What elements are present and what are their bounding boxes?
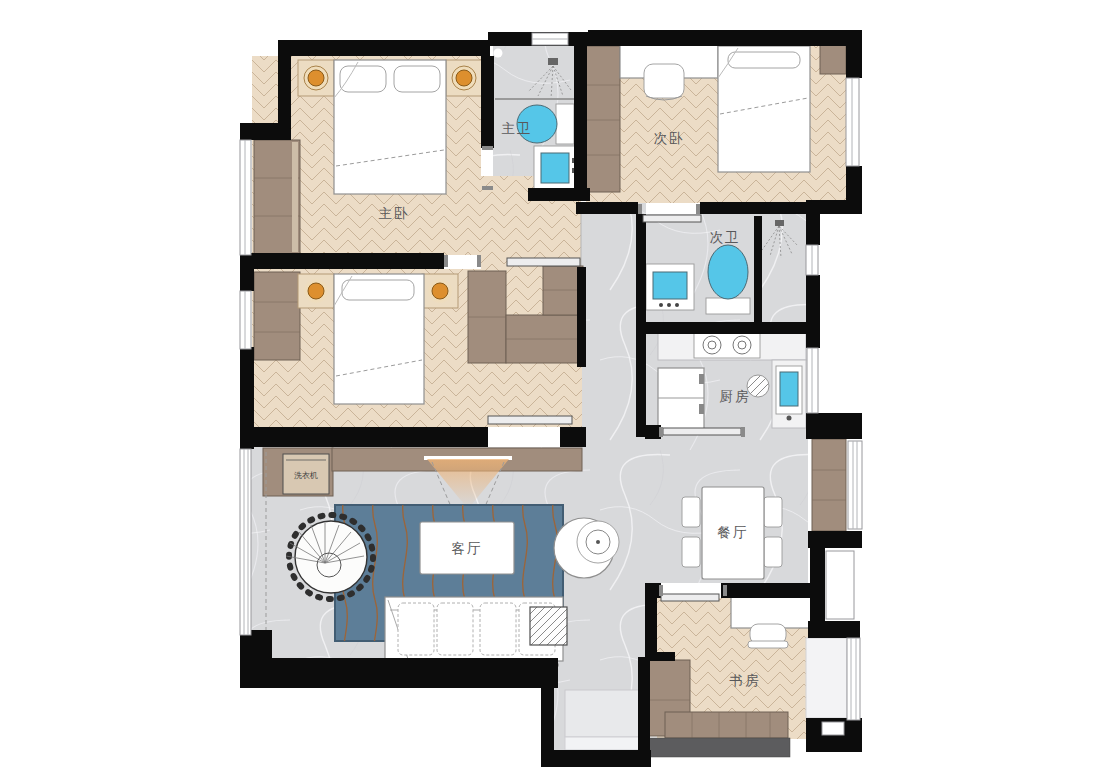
window (240, 449, 251, 635)
bed (334, 274, 424, 404)
second-bedroom-label: 次卧 (654, 131, 685, 146)
entry-threshold (565, 737, 643, 750)
bookshelf (665, 712, 788, 738)
ceiling-light-icon (494, 49, 503, 58)
wall-segment (252, 253, 444, 269)
wall-segment (806, 413, 862, 439)
window (240, 291, 251, 349)
wall-segment (577, 267, 586, 367)
sliding-door (643, 215, 701, 222)
window (807, 348, 818, 413)
wall-segment (588, 30, 862, 46)
wardrobe (254, 272, 300, 360)
desk-chair (644, 64, 684, 100)
door-jamb (741, 427, 745, 437)
bed (718, 46, 810, 172)
door-jamb (659, 427, 663, 437)
window (846, 78, 859, 166)
entry (565, 690, 643, 750)
wall-segment (700, 202, 806, 214)
wall-segment (645, 425, 661, 439)
wardrobe-door (292, 142, 298, 252)
window (848, 441, 862, 529)
wall-segment (846, 46, 862, 78)
dining-chair (764, 497, 782, 527)
pillow (340, 66, 386, 92)
cushion (437, 603, 473, 655)
nightstand-right (446, 60, 482, 96)
study-label: 书房 (730, 673, 761, 688)
wall-segment (481, 56, 494, 148)
wall-segment (806, 334, 820, 348)
toilet (706, 245, 750, 314)
master-bath-label: 主卫 (502, 121, 533, 136)
fridge (658, 368, 704, 430)
second-bath-label: 次卫 (710, 230, 741, 245)
cushion (480, 603, 516, 655)
nightstand-right (422, 274, 458, 308)
floor-plan-drawing: 洗衣机 客厅 (0, 0, 1101, 778)
wall-segment (541, 750, 651, 767)
washing-machine-label: 洗衣机 (294, 471, 318, 480)
stove (694, 332, 760, 358)
pillow (728, 52, 800, 68)
desk-chair (748, 624, 788, 648)
living-room-label: 客厅 (452, 541, 483, 556)
study-balcony-floor (806, 638, 847, 718)
corner-cabinet (820, 44, 846, 74)
wall-segment (636, 332, 646, 437)
door-jamb (723, 585, 727, 596)
wall-segment (754, 216, 762, 332)
window (240, 140, 251, 255)
wall-segment (808, 621, 860, 638)
sliding-door (507, 258, 580, 266)
wall-segment (278, 40, 291, 128)
wall-segment (636, 214, 646, 332)
wall-segment (240, 123, 291, 140)
dining-chair (682, 537, 700, 567)
sliding-door (663, 428, 741, 435)
dining-room-label: 餐厅 (718, 525, 749, 540)
wall-segment (574, 45, 587, 190)
tall-cabinet (812, 439, 846, 531)
window (847, 638, 860, 720)
laundry-closet: 洗衣机 (263, 448, 333, 496)
nightstand-left (298, 60, 334, 96)
dining-table: 餐厅 (702, 487, 764, 579)
wall-segment (240, 253, 254, 291)
door-jamb (638, 204, 642, 214)
door-jamb (696, 204, 700, 214)
sliding-door (488, 416, 572, 424)
kitchen-label: 厨房 (720, 389, 751, 404)
wall-segment (278, 40, 490, 56)
floor-plan-canvas: 洗衣机 客厅 (0, 0, 1101, 778)
wall-segment (806, 200, 862, 214)
wall-segment (721, 583, 813, 598)
door-jamb (477, 255, 481, 267)
wall-segment (560, 427, 586, 447)
lamp-icon (456, 70, 472, 86)
wall-segment (638, 657, 650, 757)
window (532, 33, 568, 45)
wall-segment (240, 658, 558, 688)
sliding-door (661, 594, 719, 601)
sofa-side-table (530, 607, 567, 645)
wall-segment (252, 427, 488, 447)
bay-window (826, 551, 854, 619)
wall-segment (636, 322, 806, 334)
double-bed (334, 60, 446, 194)
wall-segment (240, 347, 254, 449)
kitchen-sink (776, 366, 802, 421)
low-cabinet (648, 738, 790, 757)
wall-segment (576, 202, 638, 214)
wicker-chair (286, 515, 373, 599)
dining-chair (682, 497, 700, 527)
sink (534, 146, 578, 190)
wall-segment (645, 598, 657, 654)
door-jamb (482, 146, 493, 150)
door-jamb (482, 186, 493, 190)
window (822, 722, 844, 735)
coffee-table: 客厅 (420, 522, 514, 574)
nightstand-left (298, 274, 334, 308)
wardrobe (586, 46, 620, 192)
entry-step (565, 690, 643, 737)
master-bedroom-label: 主卧 (379, 206, 410, 221)
wall-segment (806, 214, 820, 245)
wall-segment (808, 531, 862, 548)
pillow (342, 280, 414, 300)
lamp-icon (432, 283, 448, 299)
dining-chair (764, 537, 782, 567)
cushion (398, 603, 434, 655)
door-jamb (659, 585, 663, 596)
window (806, 245, 818, 275)
sink (646, 264, 694, 310)
wall-segment (806, 275, 820, 334)
pillow (394, 66, 440, 92)
wall-segment (645, 583, 661, 598)
lamp-icon (308, 70, 324, 86)
lamp-icon (308, 283, 324, 299)
door-jamb (444, 255, 448, 267)
wall-segment (541, 688, 554, 752)
desk (731, 596, 813, 628)
